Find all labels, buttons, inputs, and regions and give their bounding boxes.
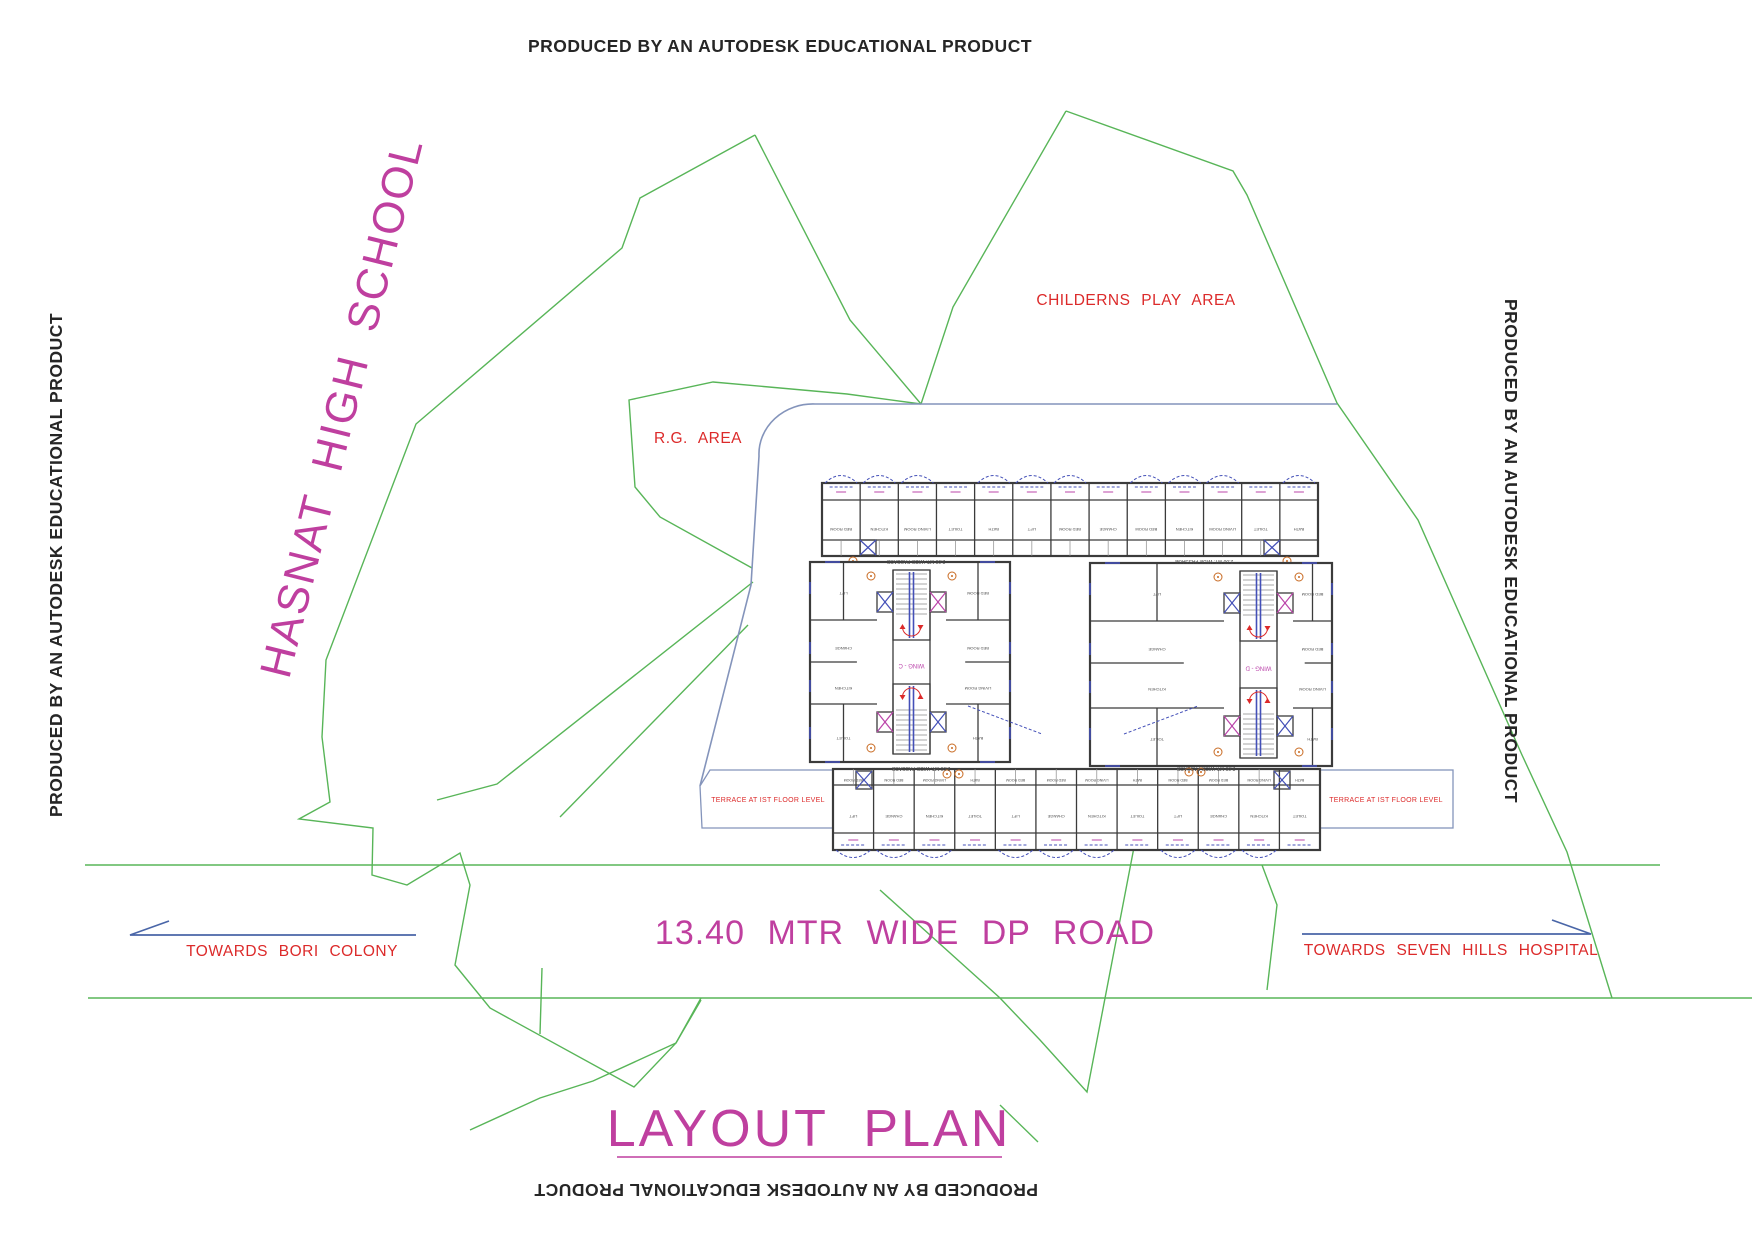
column-marker-dot (951, 575, 953, 577)
room-label: 2.00 MT. WIDE PASSAGE (1174, 558, 1233, 564)
room-label: LIVING ROOM (965, 686, 992, 691)
room-label: LIFT (1011, 814, 1020, 819)
room-label: BATH (1132, 778, 1142, 782)
sheet-title: LAYOUT PLAN (607, 1100, 1012, 1158)
column-marker-dot (1217, 576, 1219, 578)
room-label: LIVING ROOM (904, 527, 931, 532)
room-label: BED ROOM (1059, 527, 1081, 532)
room-label: BATH (1295, 778, 1305, 782)
room-label: KITCHEN (926, 814, 944, 819)
room-label: KITCHEN (1250, 814, 1268, 819)
column-marker-dot (870, 575, 872, 577)
room-label: TOILET (836, 736, 850, 741)
room-label: WING - D (1245, 665, 1272, 671)
produced-banner-top: PRODUCED BY AN AUTODESK EDUCATIONAL PROD… (528, 36, 1032, 56)
room-label: TOILET (1130, 814, 1144, 819)
room-label: 2.00 MT. WIDE PASSAGE (1176, 765, 1235, 771)
column-marker-dot (870, 747, 872, 749)
cad-drawing: BED ROOMKITCHENLIVING ROOMTOILETBATHLIFT… (0, 0, 1754, 1241)
room-label: TOILET (1253, 527, 1267, 532)
terrace-right-label: TERRACE AT IST FLOOR LEVEL (1329, 797, 1443, 804)
road-width-label: 13.40 MTR WIDE DP ROAD (655, 914, 1155, 952)
room-label: BED ROOM (1302, 647, 1324, 652)
room-label: LIVING ROOM (1085, 778, 1108, 782)
room-label: TOILET (1292, 814, 1306, 819)
column-marker-dot (958, 773, 960, 775)
room-label: CHANGE (1148, 647, 1165, 652)
room-label: BED ROOM (967, 591, 989, 596)
rg-area-label: R.G. AREA (654, 430, 742, 447)
column-marker-dot (1298, 751, 1300, 753)
column-marker-dot (946, 773, 948, 775)
room-label: BED ROOM (1302, 592, 1324, 597)
room-label: LIFT (1152, 592, 1161, 597)
room-label: LIFT (1027, 527, 1036, 532)
room-label: 2.00 MT. WIDE PASSAGE (886, 558, 945, 564)
room-label: BATH (973, 736, 983, 741)
towards-bori-colony-label: TOWARDS BORI COLONY (186, 943, 398, 960)
room-label: BED ROOM (884, 778, 903, 782)
room-label: KITCHEN (1176, 527, 1194, 532)
produced-banner-left: PRODUCED BY AN AUTODESK EDUCATIONAL PROD… (46, 313, 66, 817)
room-label: BATH (988, 527, 998, 532)
room-label: BED ROOM (967, 646, 989, 651)
room-label: BED ROOM (844, 778, 863, 782)
column-marker-dot (1217, 751, 1219, 753)
room-label: KITCHEN (1088, 814, 1106, 819)
produced-banner-right: PRODUCED BY AN AUTODESK EDUCATIONAL PROD… (1501, 299, 1521, 803)
room-label: LIVING ROOM (1209, 527, 1236, 532)
room-label: KITCHEN (1148, 687, 1166, 692)
layout-plan-sheet: BED ROOMKITCHENLIVING ROOMTOILETBATHLIFT… (0, 0, 1754, 1241)
produced-banner-bottom: PRODUCED BY AN AUTODESK EDUCATIONAL PROD… (534, 1180, 1038, 1200)
room-label: BATH (1294, 527, 1304, 532)
column-marker-dot (1298, 576, 1300, 578)
wing-block (1090, 563, 1332, 766)
room-label: LIVING ROOM (923, 778, 946, 782)
room-label: CHANGE (885, 814, 902, 819)
layout-plan-title: LAYOUT PLAN (607, 1100, 1012, 1158)
room-label: BED ROOM (1135, 527, 1157, 532)
towards-seven-hills-label: TOWARDS SEVEN HILLS HOSPITAL (1304, 942, 1598, 959)
room-label: BATH (1307, 737, 1317, 742)
room-label: TOILET (948, 527, 962, 532)
room-label: BATH (970, 778, 980, 782)
room-label: WING - C (898, 662, 925, 668)
room-label: BED ROOM (830, 527, 852, 532)
column-marker-dot (1286, 560, 1288, 562)
room-label: CHANGE (1099, 527, 1116, 532)
room-label: LIFT (1173, 814, 1182, 819)
room-label: LIFT (849, 814, 858, 819)
room-label: LIVING ROOM (1247, 778, 1270, 782)
room-label: LIFT (839, 591, 848, 596)
room-label: CHANGE (835, 646, 852, 651)
room-label: BED ROOM (1006, 778, 1025, 782)
room-label: 2.00 MT. WIDE PASSAGE (891, 765, 950, 771)
room-label: BED ROOM (1209, 778, 1228, 782)
terrace-left-label: TERRACE AT IST FLOOR LEVEL (711, 797, 825, 804)
room-label: TOILET (968, 814, 982, 819)
room-label: BED ROOM (1168, 778, 1187, 782)
room-label: CHANGE (1210, 814, 1227, 819)
room-label: TOILET (1149, 737, 1163, 742)
room-label: KITCHEN (870, 527, 888, 532)
room-label: CHANGE (1047, 814, 1064, 819)
room-label: LIVING ROOM (1299, 687, 1326, 692)
room-label: BED ROOM (1047, 778, 1066, 782)
room-label: KITCHEN (835, 686, 853, 691)
childrens-play-area-label: CHILDERNS PLAY AREA (1036, 292, 1235, 309)
column-marker-dot (951, 747, 953, 749)
